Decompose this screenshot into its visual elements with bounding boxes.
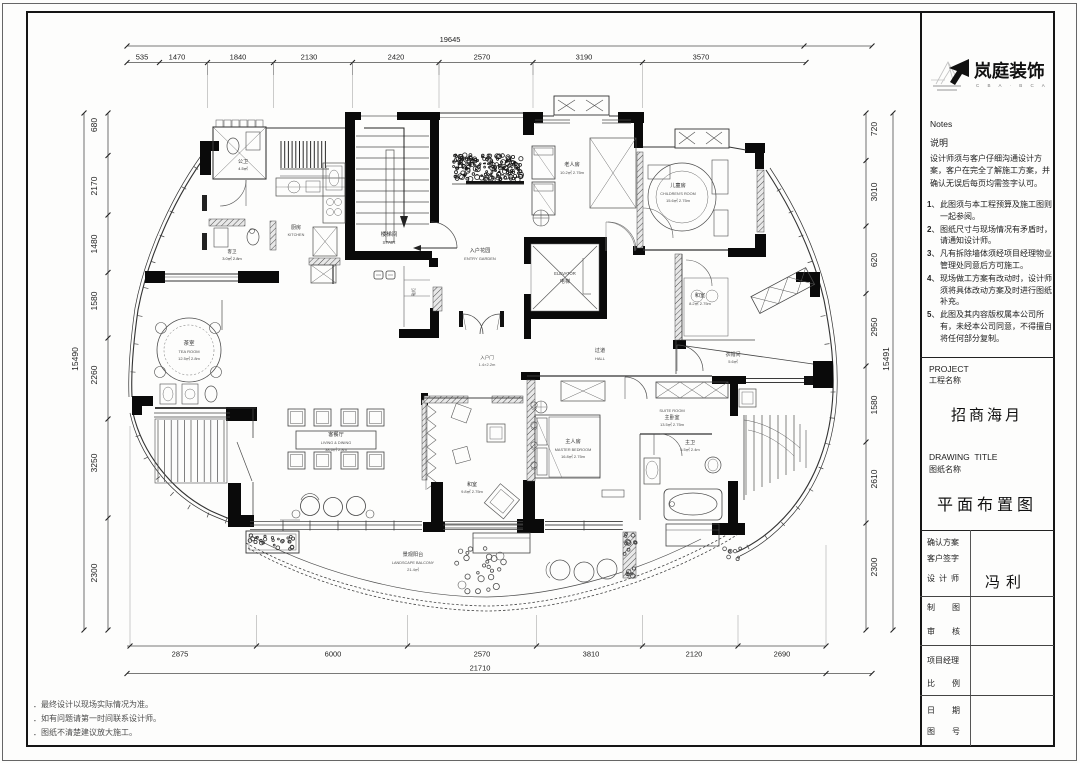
svg-text:13.5㎡ 2.75m: 13.5㎡ 2.75m [660, 421, 685, 427]
svg-text:3010: 3010 [869, 182, 879, 201]
svg-text:厨房: 厨房 [291, 224, 301, 231]
svg-text:3190: 3190 [576, 53, 593, 62]
svg-text:10.2㎡ 2.75m: 10.2㎡ 2.75m [560, 169, 585, 175]
svg-text:2300: 2300 [869, 557, 879, 576]
svg-text:19645: 19645 [440, 35, 461, 44]
svg-text:和室: 和室 [695, 291, 705, 299]
svg-text:入户花园: 入户花园 [470, 246, 491, 254]
svg-text:1.4×2.2m: 1.4×2.2m [479, 362, 496, 367]
svg-text:主卧室: 主卧室 [664, 414, 679, 421]
svg-text:1580: 1580 [869, 395, 879, 414]
svg-text:2120: 2120 [686, 650, 703, 659]
svg-text:ELEVATOR: ELEVATOR [554, 271, 576, 276]
svg-text:2570: 2570 [474, 53, 491, 62]
svg-text:1480: 1480 [89, 234, 99, 253]
svg-text:15.6㎡ 2.75m: 15.6㎡ 2.75m [666, 197, 691, 203]
svg-text:和室: 和室 [467, 481, 477, 488]
svg-text:2260: 2260 [89, 365, 99, 384]
svg-text:岚庭装饰: 岚庭装饰 [974, 61, 1045, 81]
svg-text:2610: 2610 [869, 469, 879, 488]
svg-text:3570: 3570 [693, 53, 710, 62]
svg-text:21710: 21710 [470, 664, 491, 673]
svg-text:LIVING & DINING: LIVING & DINING [321, 441, 351, 445]
svg-text:5.6㎡: 5.6㎡ [728, 358, 738, 364]
svg-text:680: 680 [89, 118, 99, 132]
svg-text:6000: 6000 [325, 650, 342, 659]
svg-text:公卫: 公卫 [238, 159, 248, 165]
svg-text:SUITE ROOM: SUITE ROOM [659, 408, 684, 413]
svg-text:TEA ROOM: TEA ROOM [178, 349, 199, 354]
svg-text:主卫: 主卫 [685, 439, 695, 446]
svg-text:STAIR: STAIR [383, 240, 397, 245]
svg-text:客餐厅: 客餐厅 [328, 430, 344, 438]
svg-text:入户门: 入户门 [480, 354, 494, 361]
svg-text:客卫: 客卫 [228, 248, 237, 255]
svg-text:HALL: HALL [595, 356, 606, 361]
svg-text:茶室: 茶室 [183, 339, 195, 347]
svg-text:2300: 2300 [89, 563, 99, 582]
svg-text:9.8㎡ 2.75m: 9.8㎡ 2.75m [461, 488, 483, 494]
svg-text:2170: 2170 [89, 176, 99, 195]
svg-text:1470: 1470 [169, 53, 186, 62]
svg-text:15491: 15491 [881, 347, 891, 371]
svg-text:16.8㎡ 2.75m: 16.8㎡ 2.75m [561, 453, 586, 459]
svg-text:ENTRY GARDEN: ENTRY GARDEN [464, 256, 496, 261]
svg-text:鞋柜: 鞋柜 [410, 288, 416, 296]
svg-text:1840: 1840 [230, 53, 247, 62]
svg-text:LANDSCAPE BALCONY: LANDSCAPE BALCONY [392, 561, 435, 565]
svg-text:3.0㎡ 2.8m: 3.0㎡ 2.8m [222, 255, 242, 261]
svg-text:2690: 2690 [774, 650, 791, 659]
svg-text:2950: 2950 [869, 317, 879, 336]
svg-text:3250: 3250 [89, 453, 99, 472]
svg-text:2875: 2875 [172, 650, 189, 659]
svg-text:MASTER BEDROOM: MASTER BEDROOM [555, 448, 592, 452]
svg-text:12.5㎡ 2.8m: 12.5㎡ 2.8m [178, 355, 200, 361]
svg-text:主人房: 主人房 [565, 437, 581, 445]
svg-text:老人房: 老人房 [564, 160, 580, 168]
svg-text:儿童房: 儿童房 [670, 181, 686, 189]
svg-text:720: 720 [869, 122, 879, 136]
svg-text:KITCHEN: KITCHEN [288, 233, 305, 237]
svg-text:4.5㎡: 4.5㎡ [238, 165, 248, 171]
svg-text:CHILDREN'S ROOM: CHILDREN'S ROOM [660, 192, 696, 196]
svg-text:15490: 15490 [70, 347, 80, 371]
svg-text:535: 535 [136, 53, 149, 62]
svg-text:2130: 2130 [301, 53, 318, 62]
svg-text:2570: 2570 [474, 650, 491, 659]
svg-text:21.4㎡: 21.4㎡ [407, 566, 419, 572]
svg-text:过道: 过道 [595, 346, 605, 354]
svg-text:620: 620 [869, 253, 879, 267]
svg-text:电梯: 电梯 [560, 277, 570, 285]
svg-text:6.5㎡ 2.4m: 6.5㎡ 2.4m [680, 446, 700, 452]
svg-text:景观阳台: 景观阳台 [403, 550, 424, 558]
svg-text:楼梯间: 楼梯间 [381, 230, 398, 238]
svg-text:2420: 2420 [388, 53, 405, 62]
svg-text:C B A · B C A: C B A · B C A [976, 83, 1048, 88]
svg-text:3810: 3810 [583, 650, 600, 659]
svg-text:1580: 1580 [89, 291, 99, 310]
svg-text:38.6㎡ 2.8m: 38.6㎡ 2.8m [325, 446, 347, 452]
